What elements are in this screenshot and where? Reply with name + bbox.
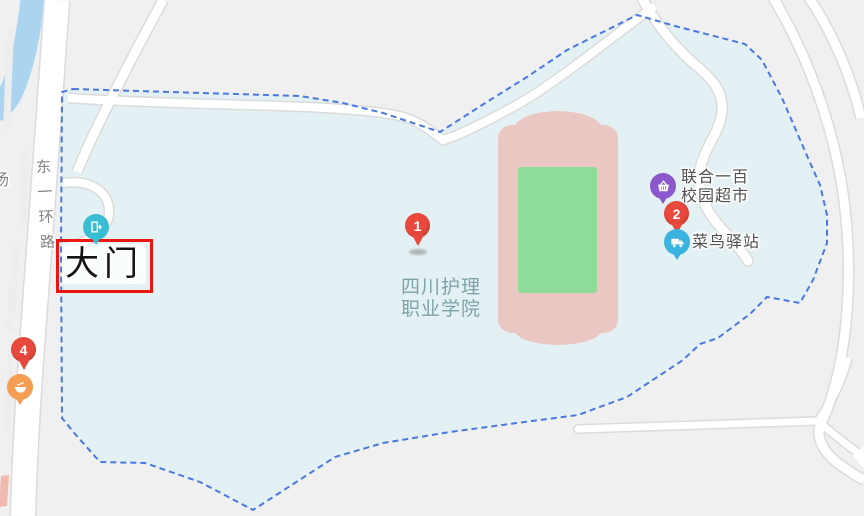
delivery-cart-glyph bbox=[670, 235, 685, 250]
marker-balloon-2[interactable]: 2 bbox=[664, 201, 689, 226]
marker-1-shadow bbox=[409, 249, 427, 255]
campus-name-label[interactable]: 四川护理 职业学院 bbox=[401, 277, 481, 321]
highlighted-road-strip bbox=[0, 475, 9, 507]
marker-balloon-1[interactable]: 1 bbox=[405, 213, 430, 238]
edge-poi-label: 汤 bbox=[0, 166, 9, 190]
restaurant-icon[interactable] bbox=[7, 374, 33, 400]
parcel-station-icon[interactable] bbox=[664, 229, 690, 255]
stadium-field bbox=[518, 167, 597, 293]
map-viewport[interactable]: 东 一 环 路 汤 四川护理 职业学院 联合一百 校园超市 2 菜鸟驿站 1 bbox=[0, 0, 864, 516]
door-glyph bbox=[89, 220, 103, 234]
marker-balloon-4[interactable]: 4 bbox=[11, 337, 36, 362]
supermarket-basket-icon[interactable] bbox=[650, 173, 676, 199]
basket-glyph bbox=[656, 179, 671, 194]
bowl-glyph bbox=[13, 380, 28, 395]
gate-icon[interactable] bbox=[83, 214, 109, 240]
cainiao-label[interactable]: 菜鸟驿站 bbox=[692, 233, 760, 252]
supermarket-label[interactable]: 联合一百 校园超市 bbox=[681, 168, 749, 206]
gate-annotation-box bbox=[56, 239, 153, 293]
